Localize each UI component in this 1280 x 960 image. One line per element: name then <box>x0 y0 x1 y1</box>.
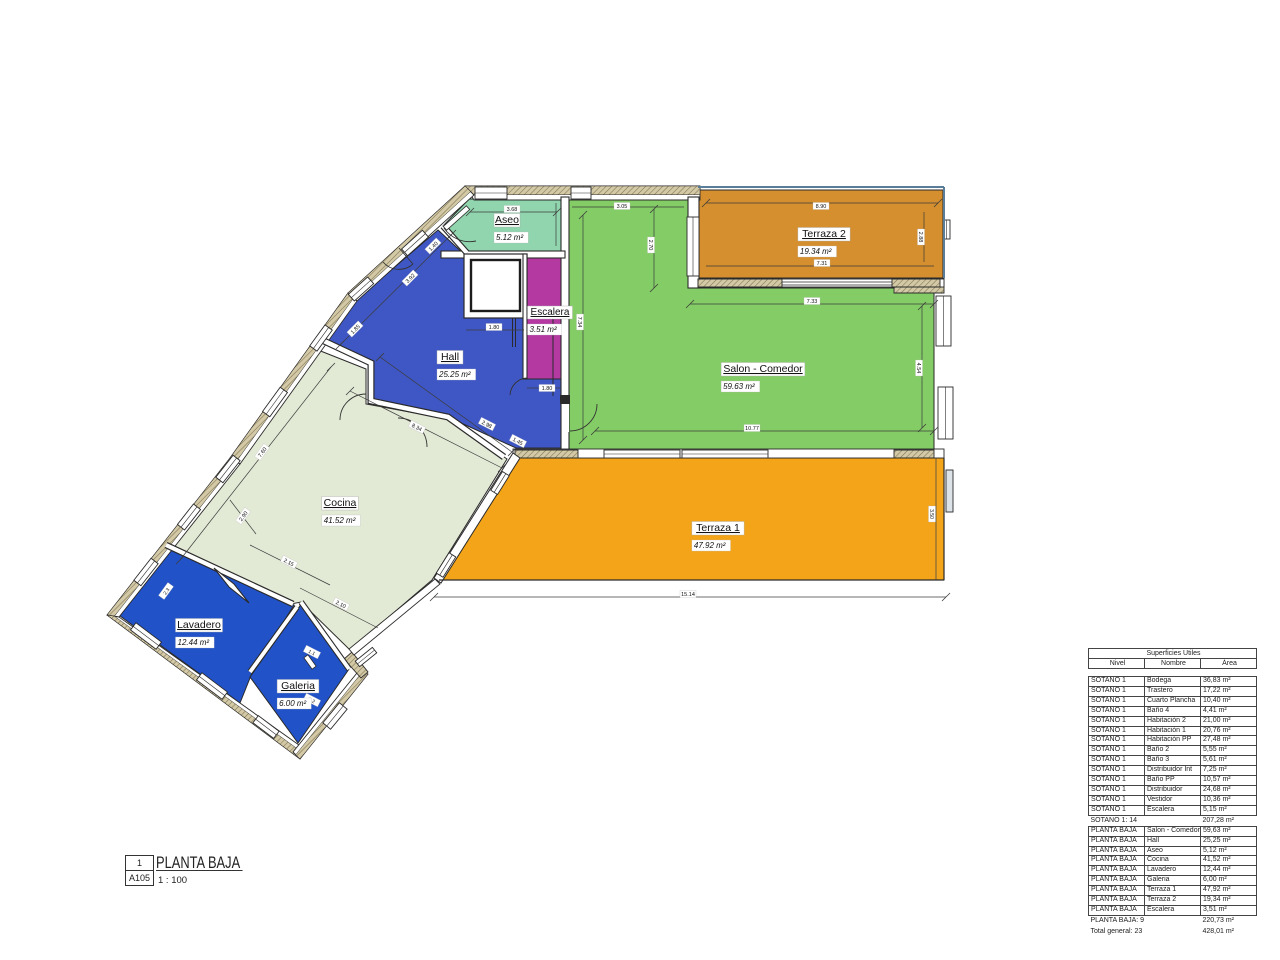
svg-text:12.44 m²: 12.44 m² <box>178 638 210 647</box>
svg-text:10.77: 10.77 <box>745 426 759 432</box>
svg-text:47.92 m²: 47.92 m² <box>694 541 726 550</box>
svg-text:15.14: 15.14 <box>681 592 695 598</box>
svg-text:5.12 m²: 5.12 m² <box>496 233 523 242</box>
svg-text:Lavadero: Lavadero <box>177 619 221 631</box>
svg-text:59.63 m²: 59.63 m² <box>723 382 755 391</box>
svg-text:41.52 m²: 41.52 m² <box>324 516 356 525</box>
svg-text:Terraza 1: Terraza 1 <box>696 522 740 534</box>
svg-text:Escalera: Escalera <box>531 307 570 318</box>
svg-text:19.34 m²: 19.34 m² <box>800 247 832 256</box>
svg-text:4.54: 4.54 <box>915 363 921 374</box>
svg-text:6.00 m²: 6.00 m² <box>279 699 306 708</box>
svg-text:3.68: 3.68 <box>507 207 518 213</box>
svg-text:Salon - Comedor: Salon - Comedor <box>723 363 803 375</box>
svg-text:3.05: 3.05 <box>617 204 628 210</box>
svg-text:1.80: 1.80 <box>489 325 500 331</box>
svg-text:Terraza 2: Terraza 2 <box>802 228 846 240</box>
svg-text:2.70: 2.70 <box>647 240 653 251</box>
svg-text:7.31: 7.31 <box>817 261 828 267</box>
svg-text:7.33: 7.33 <box>807 299 818 305</box>
svg-text:8.90: 8.90 <box>816 204 827 210</box>
svg-text:7.34: 7.34 <box>576 317 582 328</box>
svg-text:2.88: 2.88 <box>917 232 923 243</box>
svg-text:Hall: Hall <box>441 351 459 363</box>
svg-text:Galeria: Galeria <box>281 680 315 692</box>
svg-text:3.51 m²: 3.51 m² <box>530 325 557 334</box>
svg-text:Cocina: Cocina <box>324 497 357 509</box>
svg-text:1.80: 1.80 <box>542 386 553 392</box>
svg-text:Aseo: Aseo <box>495 214 519 226</box>
svg-text:25.25 m²: 25.25 m² <box>438 370 471 379</box>
svg-text:3.50: 3.50 <box>928 509 934 519</box>
